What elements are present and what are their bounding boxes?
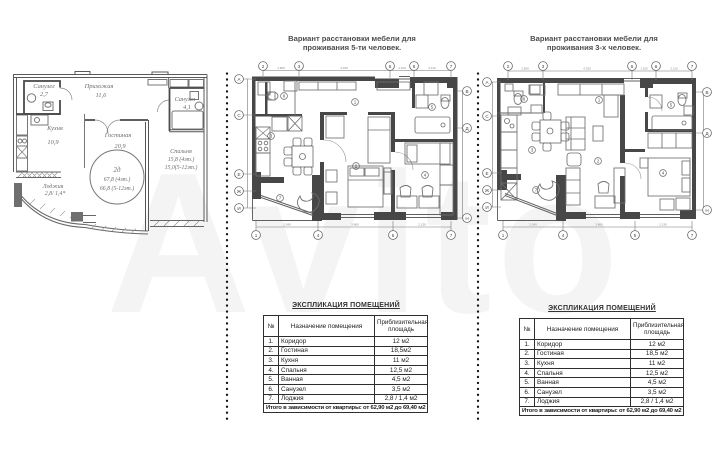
svg-text:4: 4 xyxy=(317,233,320,238)
svg-text:5: 5 xyxy=(389,64,392,69)
svg-text:4.330: 4.330 xyxy=(583,67,591,71)
svg-text:3.860: 3.860 xyxy=(351,223,359,227)
svg-text:2,8/ 1,4*: 2,8/ 1,4* xyxy=(45,190,66,197)
svg-text:1.560: 1.560 xyxy=(521,67,529,71)
svg-text:2.110: 2.110 xyxy=(670,67,678,71)
svg-text:2: 2 xyxy=(262,64,265,69)
svg-text:1: 1 xyxy=(255,233,258,238)
svg-text:Н: Н xyxy=(465,216,468,221)
svg-text:И: И xyxy=(237,206,240,211)
svg-text:Санузел: Санузел xyxy=(33,83,55,90)
svg-text:4.330: 4.330 xyxy=(340,66,348,70)
svg-text:5: 5 xyxy=(634,233,637,238)
svg-text:7: 7 xyxy=(450,64,453,69)
svg-text:66,8 (5-12эт.): 66,8 (5-12эт.) xyxy=(100,185,134,192)
svg-text:2.340: 2.340 xyxy=(283,223,291,227)
svg-text:1.100: 1.100 xyxy=(398,66,406,70)
svg-text:6: 6 xyxy=(655,64,658,69)
svg-text:15,0(5-12эт.): 15,0(5-12эт.) xyxy=(165,164,198,171)
svg-text:10,9: 10,9 xyxy=(47,139,59,146)
svg-text:Санузел: Санузел xyxy=(175,96,196,103)
svg-text:2.340: 2.340 xyxy=(529,223,537,227)
svg-text:2.130: 2.130 xyxy=(418,223,426,227)
svg-text:5: 5 xyxy=(392,233,395,238)
svg-text:2: 2 xyxy=(507,64,510,69)
svg-text:1: 1 xyxy=(502,233,505,238)
svg-text:1.100: 1.100 xyxy=(640,67,648,71)
svg-text:3: 3 xyxy=(298,64,301,69)
svg-text:И: И xyxy=(485,205,488,210)
svg-text:5: 5 xyxy=(631,64,634,69)
svg-text:2,7: 2,7 xyxy=(40,91,49,98)
svg-text:Е: Е xyxy=(237,172,240,177)
svg-text:3.860: 3.860 xyxy=(595,223,603,227)
svg-text:6: 6 xyxy=(413,64,416,69)
svg-text:Е: Е xyxy=(485,171,488,176)
svg-text:Прихожая: Прихожая xyxy=(84,83,114,90)
svg-text:3: 3 xyxy=(542,64,545,69)
svg-text:7: 7 xyxy=(450,233,453,238)
svg-text:7: 7 xyxy=(691,233,694,238)
svg-text:1.560: 1.560 xyxy=(277,66,285,70)
svg-text:В: В xyxy=(465,89,468,94)
svg-text:15,8 (4эт.): 15,8 (4эт.) xyxy=(168,156,195,163)
svg-text:2.110: 2.110 xyxy=(428,66,436,70)
svg-text:20,9: 20,9 xyxy=(114,143,126,150)
svg-text:4,1: 4,1 xyxy=(183,104,191,111)
svg-text:2д: 2д xyxy=(113,166,121,174)
svg-text:11,6: 11,6 xyxy=(96,92,108,99)
svg-text:67,8 (4эт.): 67,8 (4эт.) xyxy=(104,176,131,183)
svg-text:Гостиная: Гостиная xyxy=(104,132,132,139)
svg-text:4: 4 xyxy=(562,233,565,238)
svg-text:Кухня: Кухня xyxy=(46,125,63,132)
svg-text:2.130: 2.130 xyxy=(659,223,667,227)
svg-text:Спальня: Спальня xyxy=(170,148,192,155)
svg-text:Лоджия: Лоджия xyxy=(42,183,64,190)
svg-text:Н: Н xyxy=(705,208,708,213)
svg-text:В: В xyxy=(705,90,708,95)
svg-text:7: 7 xyxy=(691,64,694,69)
